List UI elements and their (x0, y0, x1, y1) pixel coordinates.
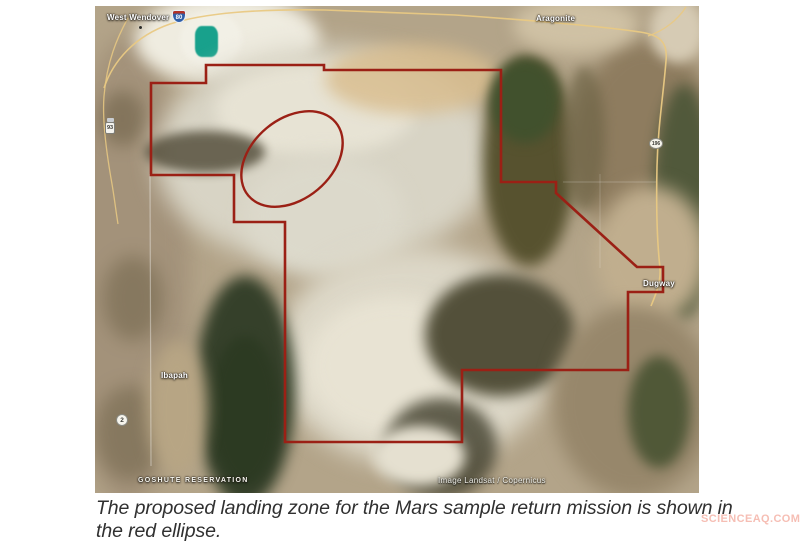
satellite-map: West Wendover Aragonite Dugway Ibapah GO… (95, 6, 699, 493)
interstate-80-number: 80 (176, 15, 183, 21)
route-2-number: 2 (120, 417, 124, 424)
map-attribution: Image Landsat / Copernicus (438, 476, 546, 485)
label-west-wendover: West Wendover (107, 13, 169, 22)
route-2-shield: 2 (116, 414, 128, 426)
poi-marker (139, 26, 142, 29)
road-highway-main (104, 10, 666, 306)
watermark-text: SCIENCEAQ.COM (701, 513, 800, 525)
road-highway-branch (648, 7, 686, 36)
label-ibapah: Ibapah (161, 371, 188, 380)
label-aragonite: Aragonite (536, 14, 575, 23)
figure-caption: The proposed landing zone for the Mars s… (96, 497, 756, 543)
road-dirt (150, 174, 151, 466)
label-goshute-reservation: GOSHUTE RESERVATION (138, 477, 249, 484)
landing-zone-ellipse (223, 92, 362, 227)
map-overlay (95, 6, 699, 493)
label-dugway: Dugway (643, 279, 675, 288)
us-93-shield: 93 (105, 122, 115, 134)
route-196-shield: 196 (649, 138, 663, 149)
us-93-number: 93 (107, 125, 113, 131)
boundary-polygon (151, 65, 663, 442)
route-196-number: 196 (652, 141, 660, 147)
